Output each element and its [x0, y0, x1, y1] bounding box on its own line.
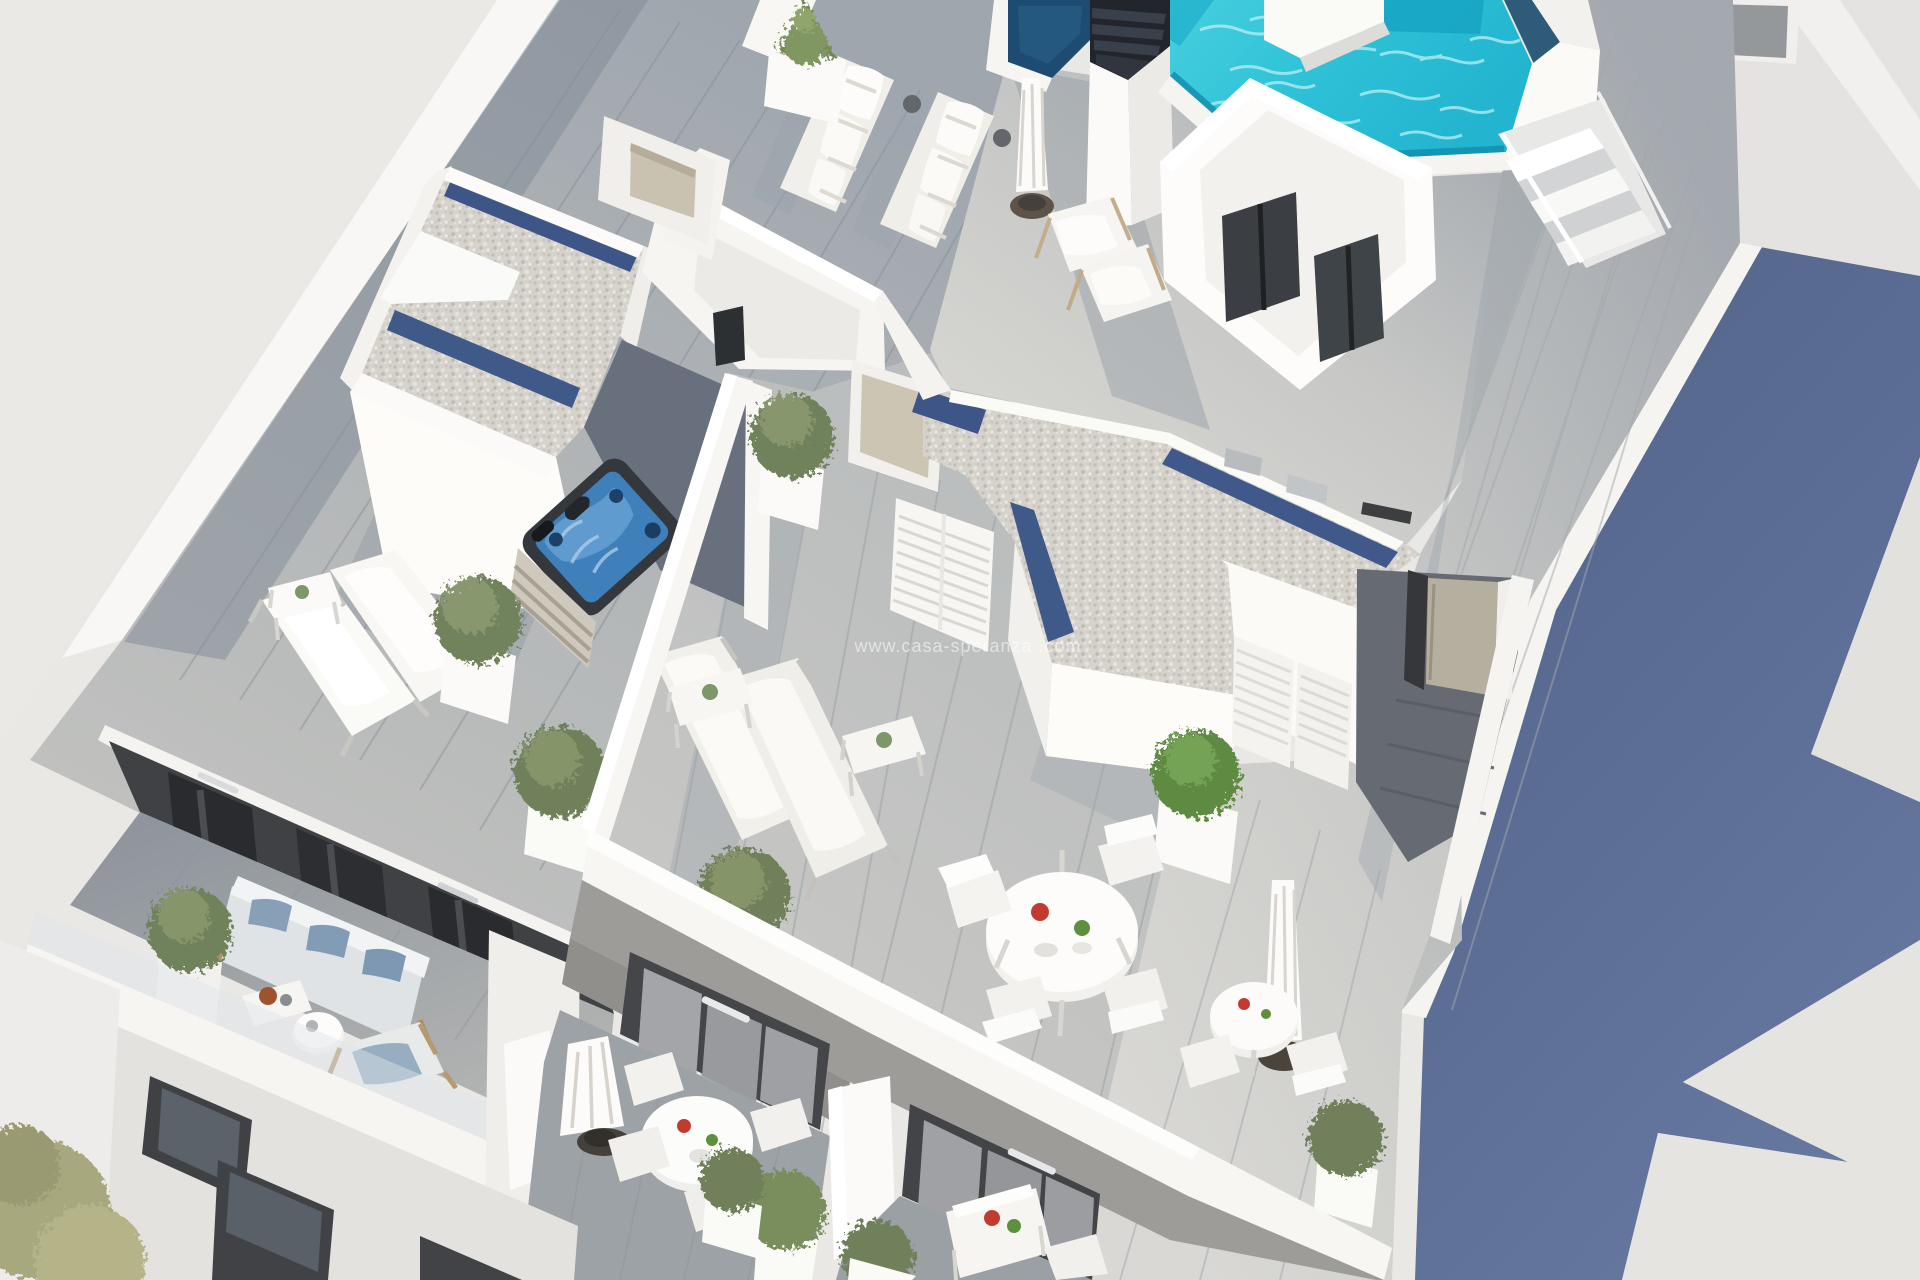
svg-text:www.casa-speranza .com: www.casa-speranza .com [853, 636, 1081, 656]
